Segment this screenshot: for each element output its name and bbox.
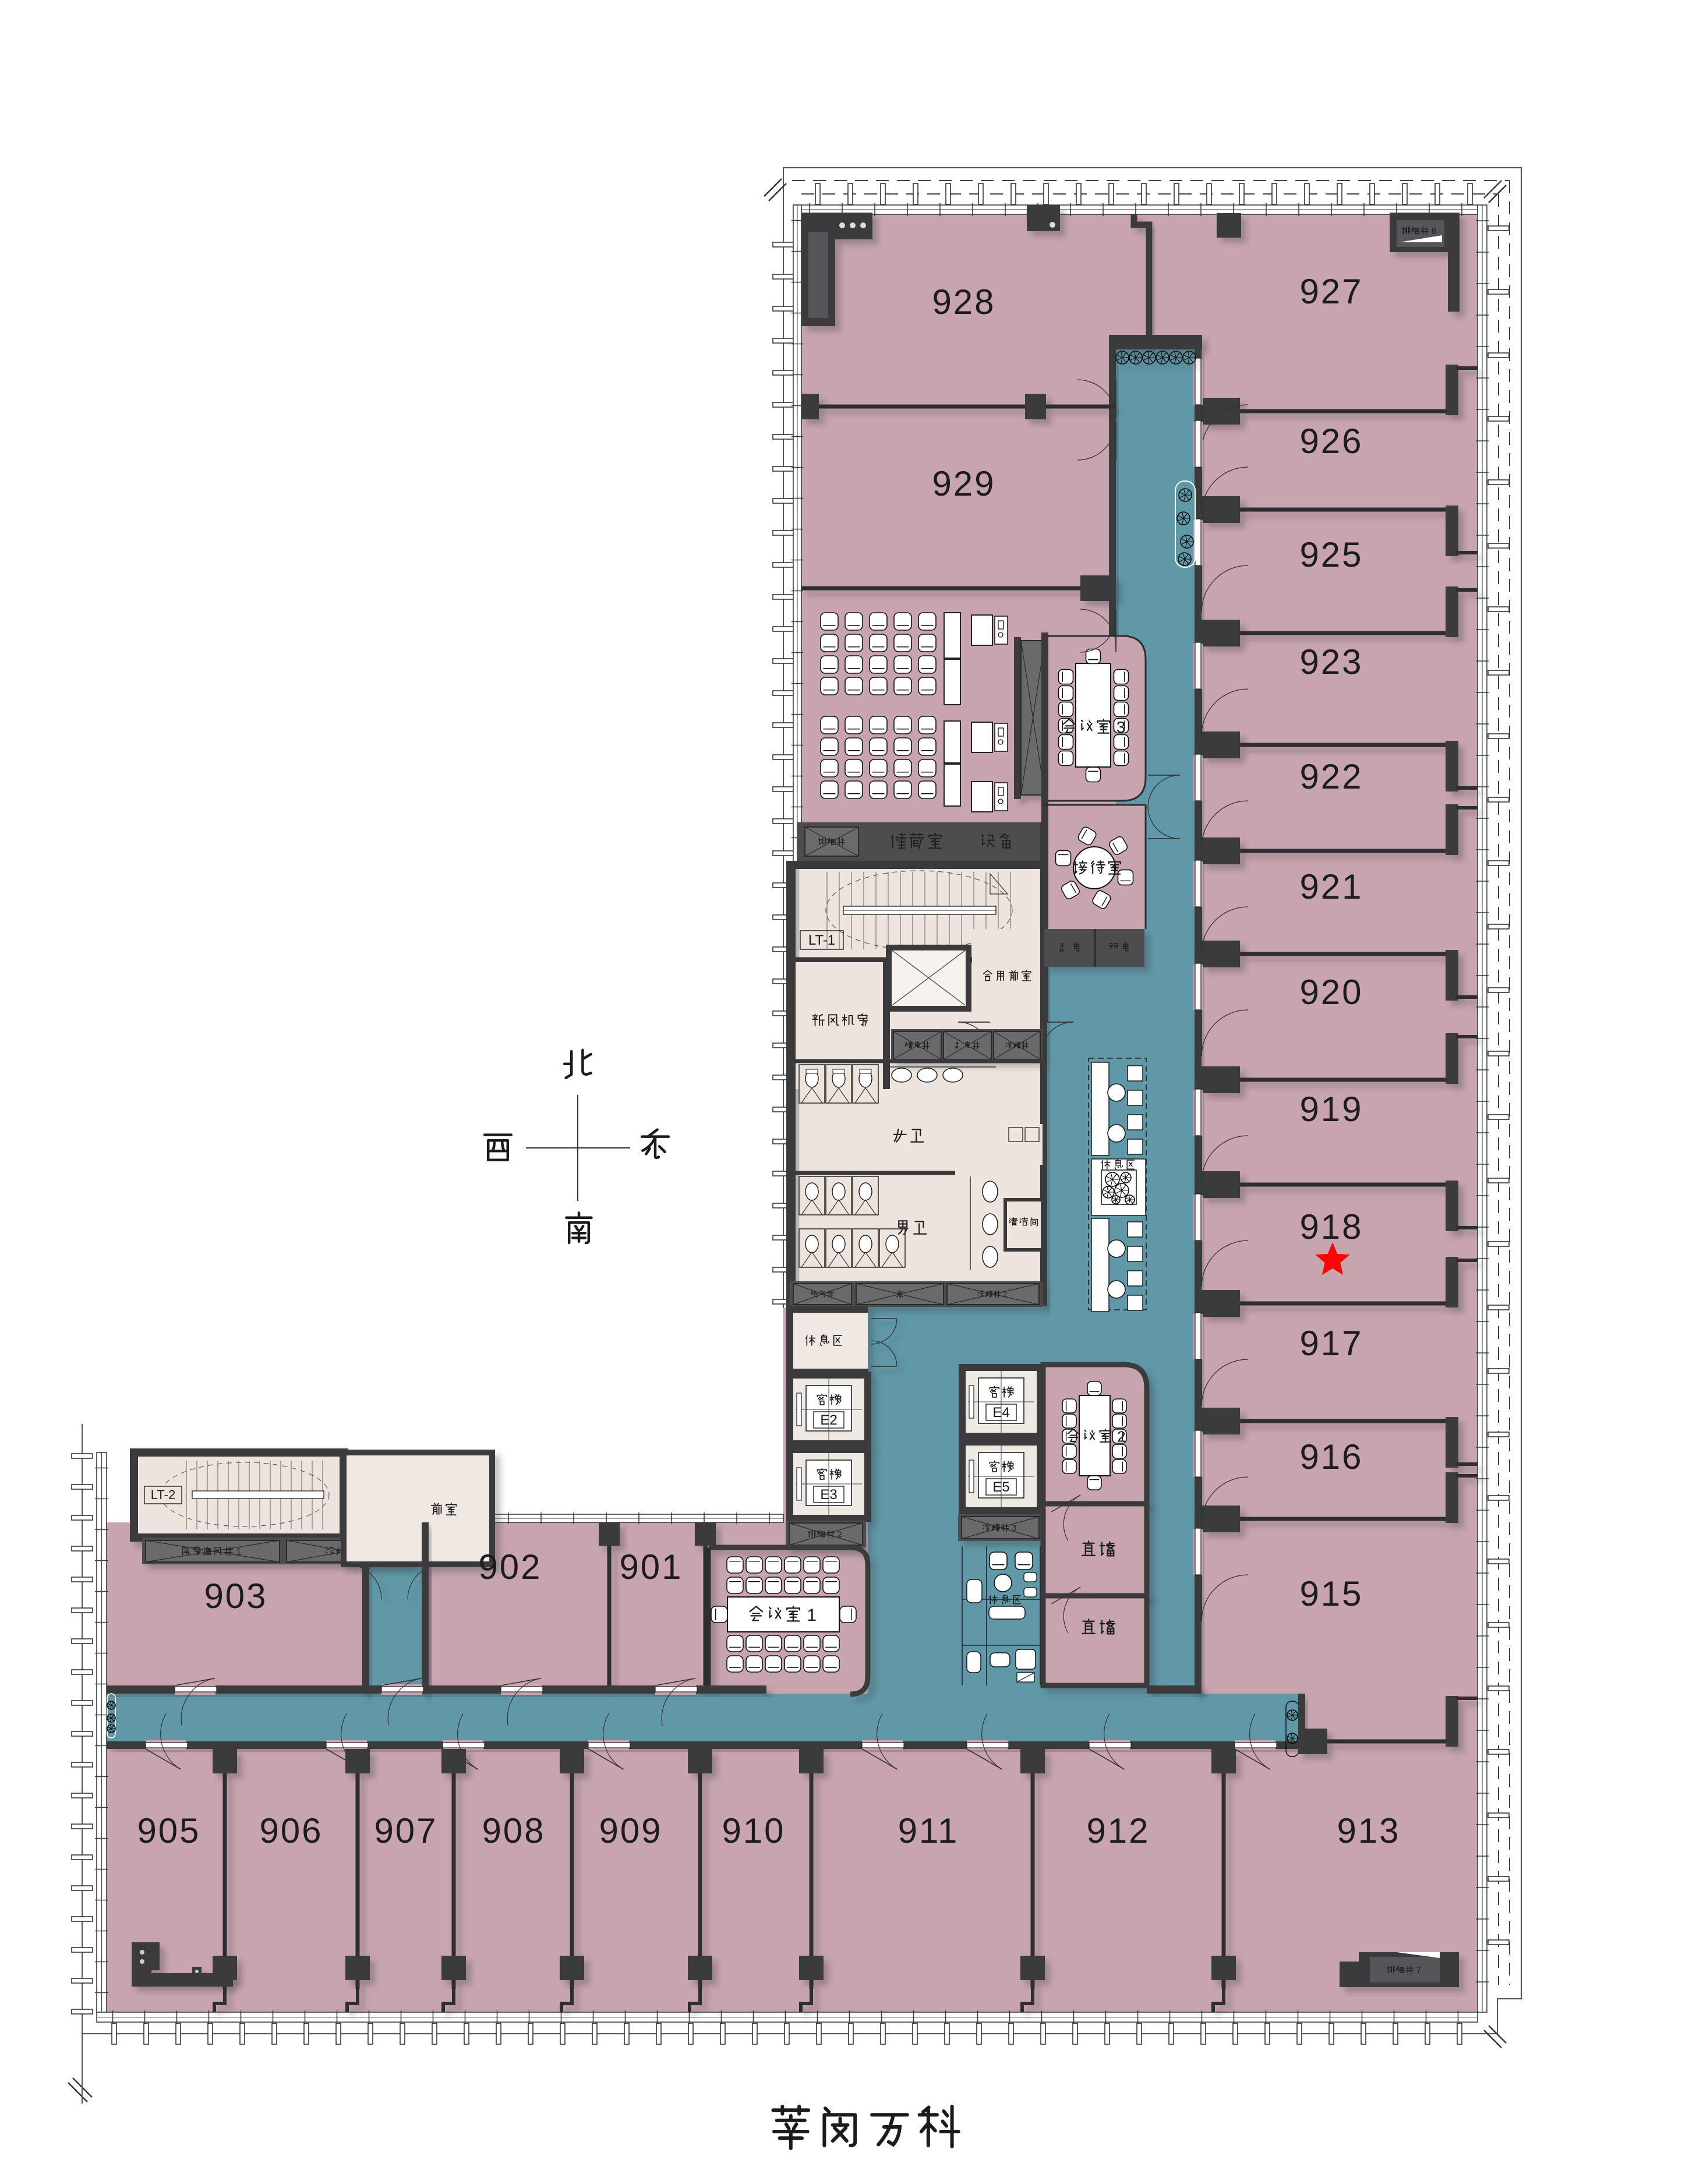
svg-text:E2: E2 [820, 1412, 837, 1428]
svg-text:910: 910 [722, 1811, 785, 1850]
svg-text:919: 919 [1299, 1090, 1363, 1129]
svg-text:917: 917 [1299, 1324, 1363, 1363]
svg-text:913: 913 [1337, 1811, 1400, 1850]
svg-text:925: 925 [1299, 535, 1363, 574]
svg-text:909: 909 [599, 1811, 662, 1850]
svg-text:3: 3 [1012, 1523, 1016, 1533]
svg-text:923: 923 [1299, 642, 1363, 681]
svg-text:918: 918 [1299, 1207, 1363, 1246]
svg-text:929: 929 [932, 464, 995, 503]
svg-text:7: 7 [1416, 1965, 1421, 1975]
svg-text:1: 1 [807, 1606, 817, 1625]
svg-text:926: 926 [1299, 422, 1363, 461]
svg-text:LT-2: LT-2 [151, 1487, 175, 1502]
svg-text:E5: E5 [992, 1479, 1009, 1495]
svg-text:911: 911 [898, 1811, 959, 1850]
svg-text:3: 3 [1116, 718, 1126, 736]
svg-text:2: 2 [1003, 1290, 1007, 1299]
svg-text:915: 915 [1299, 1574, 1363, 1613]
svg-text:E3: E3 [820, 1487, 837, 1503]
svg-text:927: 927 [1299, 272, 1363, 311]
svg-text:903: 903 [204, 1577, 267, 1616]
svg-text:LT-1: LT-1 [808, 932, 835, 948]
svg-text:907: 907 [374, 1811, 437, 1850]
svg-text:921: 921 [1299, 867, 1363, 906]
svg-text:2: 2 [1117, 1427, 1125, 1445]
svg-text:912: 912 [1086, 1811, 1150, 1850]
svg-text:916: 916 [1299, 1437, 1363, 1476]
svg-text:920: 920 [1299, 973, 1363, 1012]
svg-text:928: 928 [932, 282, 995, 321]
svg-text:902: 902 [478, 1547, 542, 1586]
svg-text:2: 2 [838, 1529, 842, 1539]
svg-text:1: 1 [236, 1546, 241, 1557]
svg-text:908: 908 [482, 1811, 545, 1850]
svg-text:922: 922 [1299, 757, 1363, 796]
svg-text:906: 906 [259, 1811, 323, 1850]
svg-text:905: 905 [137, 1811, 200, 1850]
svg-text:901: 901 [619, 1547, 683, 1586]
svg-text:E4: E4 [992, 1405, 1009, 1420]
svg-text:8: 8 [1432, 226, 1436, 236]
